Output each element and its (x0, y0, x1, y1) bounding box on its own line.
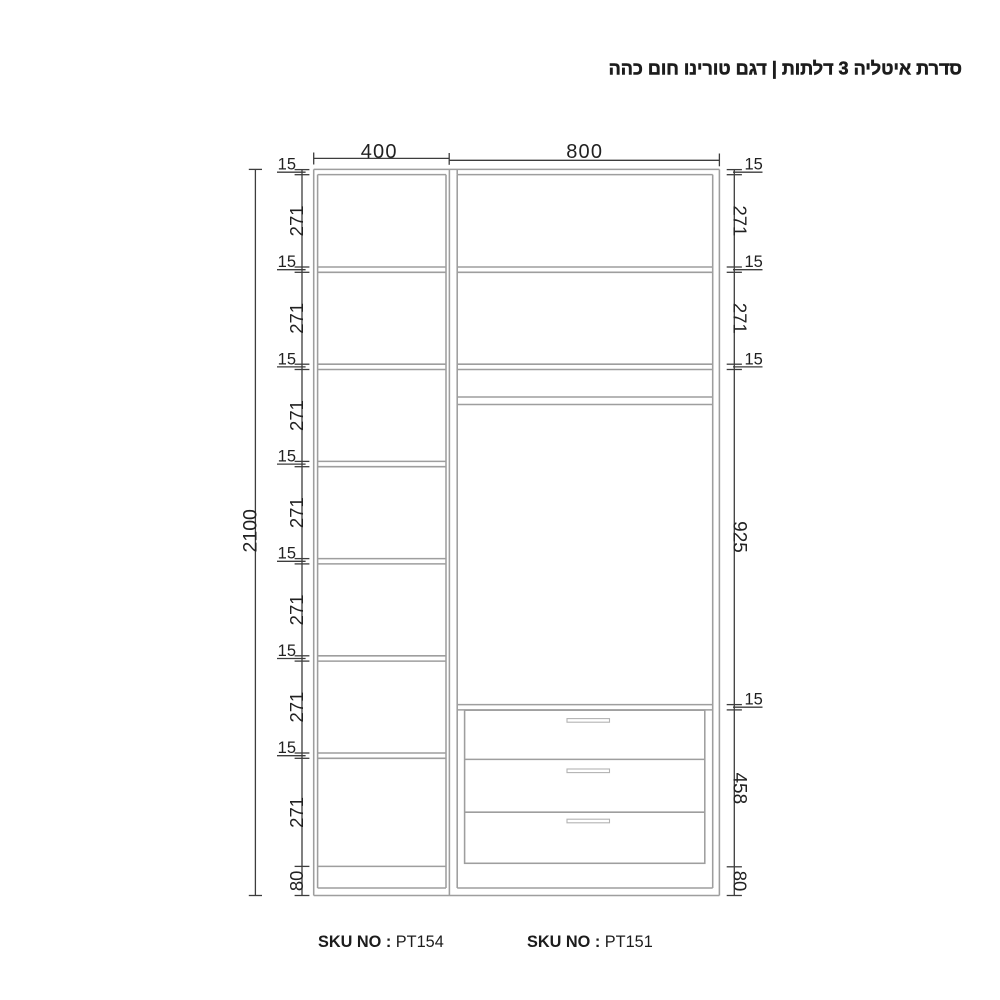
svg-text:15: 15 (745, 253, 763, 271)
svg-text:271: 271 (286, 400, 307, 431)
svg-text:15: 15 (278, 448, 296, 466)
svg-text:15: 15 (278, 253, 296, 271)
svg-text:15: 15 (745, 350, 763, 368)
svg-text:400: 400 (361, 141, 398, 163)
svg-text:271: 271 (286, 594, 307, 625)
svg-text:271: 271 (286, 205, 307, 236)
svg-text:15: 15 (745, 691, 763, 709)
svg-text:458: 458 (729, 772, 750, 804)
svg-text:271: 271 (286, 303, 307, 334)
svg-text:15: 15 (745, 156, 763, 174)
svg-text:SKU NO : PT154: SKU NO : PT154 (318, 933, 444, 951)
svg-text:271: 271 (730, 205, 751, 236)
svg-text:271: 271 (730, 303, 751, 334)
svg-text:80: 80 (730, 871, 751, 892)
svg-text:15: 15 (278, 350, 296, 368)
svg-text:סדרת איטליה 3 דלתות | דגם טורי: סדרת איטליה 3 דלתות | דגם טורינו חום כהה (609, 58, 962, 78)
svg-text:15: 15 (278, 545, 296, 563)
svg-text:80: 80 (286, 871, 307, 892)
svg-text:SKU NO : PT151: SKU NO : PT151 (527, 933, 653, 951)
svg-text:15: 15 (278, 739, 296, 757)
svg-text:271: 271 (286, 797, 307, 828)
svg-text:271: 271 (286, 692, 307, 723)
svg-text:271: 271 (286, 497, 307, 528)
svg-text:925: 925 (729, 521, 750, 553)
svg-text:800: 800 (566, 141, 603, 163)
svg-text:2100: 2100 (240, 509, 262, 553)
svg-text:15: 15 (278, 156, 296, 174)
svg-text:15: 15 (278, 642, 296, 660)
